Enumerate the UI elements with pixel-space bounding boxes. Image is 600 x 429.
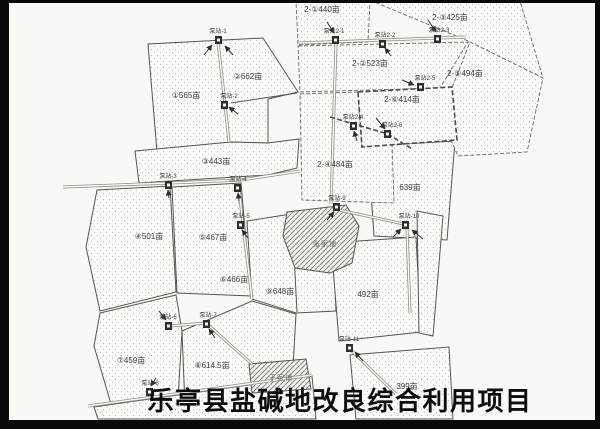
parcel-label: ⑥466亩 (220, 274, 249, 284)
pump-station-icon (221, 101, 228, 109)
parcel-label: ⑨648亩 (266, 286, 295, 296)
parcel-label: 2-④484亩 (317, 159, 353, 169)
parcel-label: ④501亩 (135, 231, 164, 241)
pump-label: 泵站-11 (339, 335, 360, 343)
pump-label: 泵站-1 (209, 27, 227, 35)
parcel-map: ①565亩 ②662亩 ③443亩 ④501亩 ⑤467亩 ⑥466亩 ⑦459… (0, 0, 600, 429)
pump-label: 泵站-10 (399, 212, 420, 220)
parcel-label: 2-②523亩 (352, 58, 388, 68)
parcel-label: ②662亩 (234, 71, 263, 81)
pump-label: 泵站-4 (229, 175, 247, 183)
pump-label: 泵站-6 (159, 313, 177, 321)
pump-label: 泵站2-4 (343, 113, 364, 121)
page-title: 乐亭县盐碱地改良综合利用项目 (147, 386, 532, 416)
parcel-label: ⑧614.5亩 (194, 360, 229, 370)
pump-station-icon (379, 40, 386, 48)
pump-station-icon (203, 320, 210, 328)
pump-label: 泵站-9 (328, 194, 346, 202)
pump-label: 泵站-5 (232, 212, 250, 220)
pump-station-icon (384, 130, 391, 138)
parcel-label: ⑦459亩 (117, 355, 146, 365)
pump-station-icon (333, 203, 340, 211)
parcel-label: 2-①440亩 (304, 4, 340, 14)
parcel-label: 492亩 (357, 289, 378, 299)
parcel-label: ⑤467亩 (199, 232, 228, 242)
pump-station-icon (237, 221, 244, 229)
pump-label: 泵站2-2 (375, 31, 396, 39)
village-shape-zhangjiapu (283, 205, 359, 273)
parcel-label: 2-③425亩 (432, 12, 468, 22)
parcel-label: 2-⑤494亩 (447, 68, 483, 78)
village-label: 张家铺 (313, 239, 337, 248)
pump-label: 泵站-7 (199, 311, 217, 319)
pump-station-icon (434, 35, 441, 43)
parcel-label: 639亩 (399, 182, 420, 192)
pump-label: 泵站2-1 (324, 27, 345, 35)
pump-label: 泵站-2 (220, 92, 238, 100)
parcel-shape-4 (86, 186, 176, 311)
parcel-label: ①565亩 (172, 90, 201, 100)
pump-station-icon (165, 181, 172, 189)
pump-station-icon (350, 122, 357, 130)
parcel-label: 2-⑥414亩 (384, 94, 420, 104)
pump-station-icon (234, 184, 241, 192)
pump-label: 泵站-3 (159, 172, 177, 180)
pump-label: 泵站2-5 (415, 74, 436, 82)
pump-station-icon (346, 344, 353, 352)
map-screenshot: ①565亩 ②662亩 ③443亩 ④501亩 ⑤467亩 ⑥466亩 ⑦459… (0, 0, 600, 429)
pump-station-icon (215, 36, 222, 44)
pump-station-icon (332, 36, 339, 44)
pump-label: 泵站2-6 (382, 121, 403, 129)
pump-label: 泵站2-3 (429, 26, 450, 34)
pump-station-icon (165, 322, 172, 330)
parcel-label: ③443亩 (202, 156, 231, 166)
pump-station-icon (402, 221, 409, 229)
pump-station-icon (417, 83, 424, 91)
village-label: 于家铺 (269, 373, 293, 382)
